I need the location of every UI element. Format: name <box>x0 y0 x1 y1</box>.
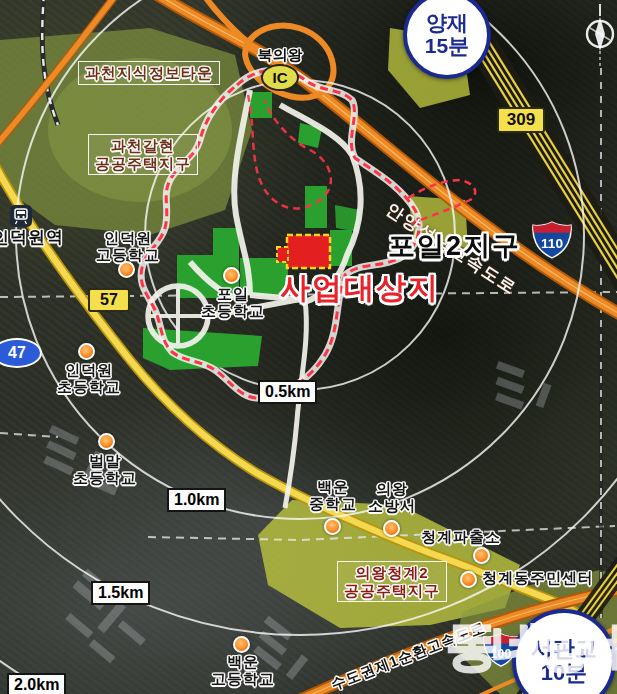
poi-label-line: 고등학교 <box>96 247 160 264</box>
poi-label-beolmal-elementary: 벌말 초등학교 <box>73 453 137 487</box>
zone-label-line: 의왕청계2 <box>344 564 440 582</box>
watermark-text: 동네방네 <box>446 612 617 682</box>
poi-label-indeogwon-high-school: 인덕원 고등학교 <box>96 230 160 264</box>
district-label: 포일2지구 <box>388 228 521 264</box>
badge-destination: 양재 <box>426 12 468 35</box>
poi-label-line: 백운 <box>211 654 275 671</box>
poi-label-line: 중학교 <box>309 496 357 513</box>
zone-label-gwacheon-galhyeon: 과천갈현 공공주택지구 <box>88 134 198 175</box>
poi-label-poil-elementary: 포일 초등학교 <box>201 286 265 320</box>
zone-label-line: 공공주택지구 <box>344 582 440 600</box>
poi-label-baegun-middle-school: 백운 중학교 <box>309 479 357 513</box>
ring-label-1-5km: 1.5km <box>91 581 150 605</box>
poi-label-uiwang-fire-station: 의왕 소방서 <box>368 481 416 515</box>
poi-label-line: 초등학교 <box>73 470 137 487</box>
compass-icon <box>582 4 617 72</box>
poi-label-line: 초등학교 <box>201 303 265 320</box>
poi-label-line: 의왕 <box>368 481 416 498</box>
zone-label-line: 공공주택지구 <box>95 155 191 173</box>
satellite-map: 양재 15분 서판교 10분 북의왕 IC 309 57 47 110 1 <box>0 0 617 694</box>
poi-label-line: 인덕원 <box>57 362 121 379</box>
poi-marker-cheonggye-police-box <box>473 547 490 564</box>
poi-marker-beolmal-elementary <box>98 433 115 450</box>
poi-marker-indeogwon-elementary <box>78 343 95 360</box>
poi-label-line: 고등학교 <box>211 671 275 688</box>
poi-label-indeogwon-elementary: 인덕원 초등학교 <box>57 362 121 396</box>
zone-label-gwacheon-knowledge-town: 과천지식정보타운 <box>78 61 220 85</box>
poi-label-baegun-high-school: 백운 고등학교 <box>211 654 275 688</box>
project-site-label: 사업대상지 <box>280 268 440 309</box>
interchange-name: 북의왕 <box>258 46 303 65</box>
zone-label-line: 과천갈현 <box>95 137 191 155</box>
ring-label-2-0km: 2.0km <box>7 673 66 694</box>
poi-label-line: 초등학교 <box>57 379 121 396</box>
poi-marker-poil-elementary <box>223 267 240 284</box>
poi-label-line: 인덕원 <box>96 230 160 247</box>
poi-marker-uiwang-fire-station <box>383 520 400 537</box>
poi-label-line: 청계파출소 <box>421 529 501 546</box>
poi-marker-baegun-middle-school <box>324 518 341 535</box>
interchange-ic-sign: IC <box>261 64 299 91</box>
badge-minutes: 15분 <box>425 35 469 58</box>
station-name: 인덕원역 <box>0 226 64 249</box>
zone-label-uiwang-cheonggye2: 의왕청계2 공공주택지구 <box>337 561 447 602</box>
poi-label-line: 청계동주민센터 <box>482 570 594 587</box>
expressway-shield-110: 110 <box>531 221 573 263</box>
poi-label-line: 백운 <box>309 479 357 496</box>
ring-label-0-5km: 0.5km <box>258 380 317 404</box>
ring-label-1-0km: 1.0km <box>167 488 226 512</box>
poi-marker-baegun-high-school <box>233 636 250 653</box>
route-badge-309: 309 <box>497 107 545 133</box>
poi-label-line: 포일 <box>201 286 265 303</box>
poi-label-cheonggye-community-center: 청계동주민센터 <box>482 570 594 587</box>
route-badge-57: 57 <box>88 288 130 312</box>
shield-number: 110 <box>541 236 563 251</box>
poi-label-line: 벌말 <box>73 453 137 470</box>
poi-marker-cheonggye-community-center <box>460 571 477 588</box>
poi-label-cheonggye-police-box: 청계파출소 <box>421 529 501 546</box>
poi-label-line: 소방서 <box>368 498 416 515</box>
